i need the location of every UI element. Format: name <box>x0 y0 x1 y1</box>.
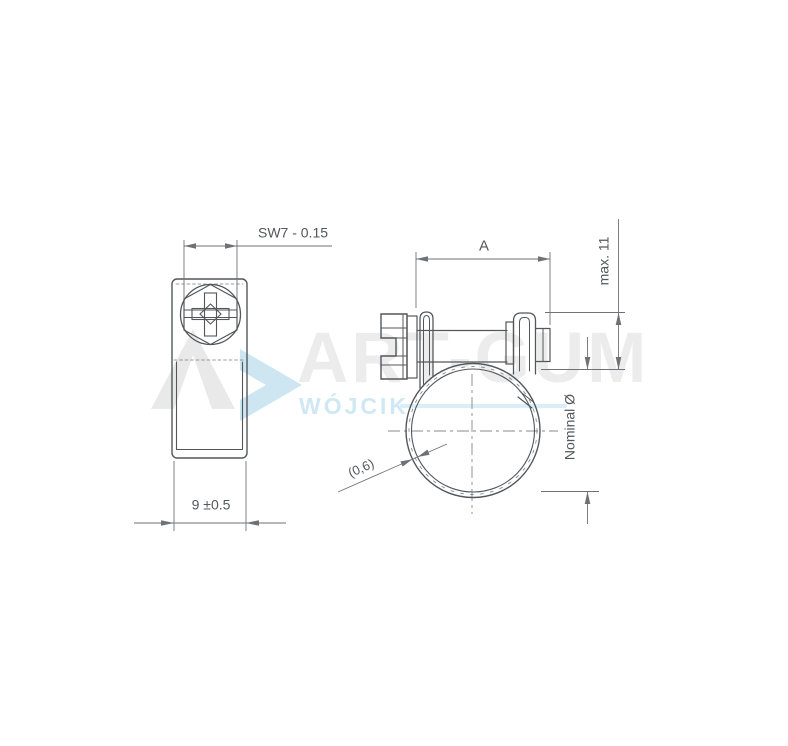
clamp-length-label: A <box>479 239 489 254</box>
phillips-cross-icon <box>192 293 229 336</box>
front-view-dimension-arrows <box>400 256 621 504</box>
nominal-diameter-label: Nominal Ø <box>563 394 578 460</box>
drawing-canvas: ART-GUM WÓJCIK <box>0 0 788 746</box>
front-view-part <box>381 312 550 498</box>
band-width-label: 9 ±0.5 <box>192 498 231 513</box>
clamp-technical-drawing <box>0 0 788 746</box>
side-view-dimension-arrows <box>161 243 259 526</box>
closure-height-label: max. 11 <box>597 237 612 286</box>
side-view-part <box>172 279 247 458</box>
hex-width-label: SW7 - 0.15 <box>258 226 328 241</box>
